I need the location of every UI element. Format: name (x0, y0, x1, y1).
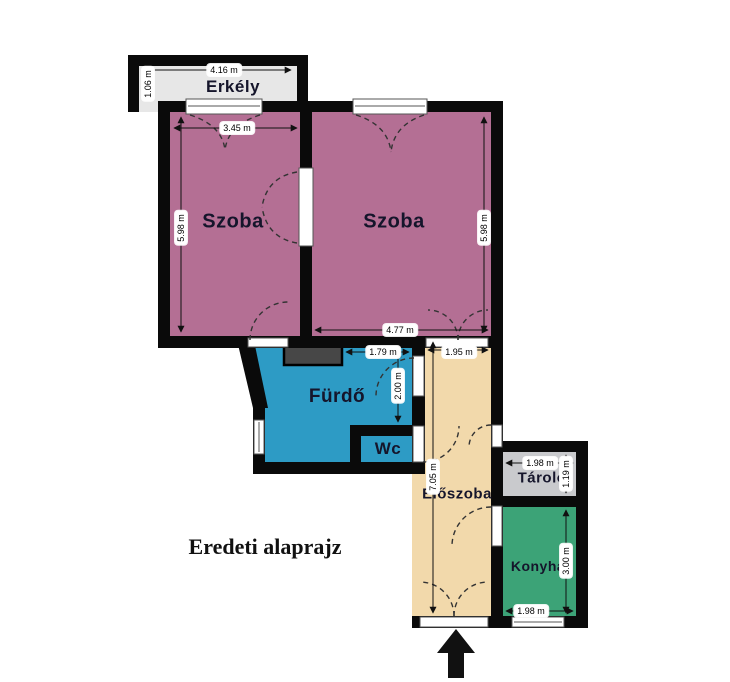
dim-tarolo-height: 1.19 m (560, 457, 572, 491)
dim-balcony-depth: 1.06 m (142, 67, 154, 101)
dim-eloszoba-height: 7.05 m (427, 460, 439, 494)
between-rooms-door (299, 168, 313, 246)
dim-eloszoba-width: 1.95 m (442, 346, 476, 358)
label-furdo: Fürdő (309, 386, 365, 408)
page-title: Eredeti alaprajz (189, 534, 342, 560)
entrance-door (420, 617, 488, 627)
wall-tarolo-kitchen (491, 496, 588, 507)
wall-wc-left (350, 425, 361, 474)
room-eloszoba (412, 336, 503, 628)
dim-furdo-height: 2.00 m (392, 369, 404, 403)
wall-tarolo-top (491, 441, 588, 452)
kitchen-door (492, 506, 502, 546)
dim-balcony-width: 4.16 m (207, 64, 241, 76)
hall-right-door (492, 425, 502, 447)
floorplan-drawing (0, 0, 730, 682)
dim-konyha-width: 1.98 m (514, 605, 548, 617)
floorplan: Erkély Szoba Szoba Fürdő Wc Előszoba Tár… (0, 0, 730, 682)
label-szoba-right: Szoba (363, 211, 424, 234)
dim-szoba-left-height: 5.98 m (175, 211, 187, 245)
wall-left-exterior (158, 101, 170, 348)
wall-kitchen-right (576, 441, 588, 628)
label-erkely: Erkély (206, 77, 260, 97)
entrance-arrow-icon (437, 629, 475, 678)
wall-bath-bottom (253, 462, 425, 474)
label-wc: Wc (375, 439, 402, 459)
dim-furdo-width: 1.79 m (366, 346, 400, 358)
wc-hall-door (413, 426, 424, 462)
dim-tarolo-width: 1.98 m (523, 457, 557, 469)
dim-szoba-right-width: 4.77 m (383, 324, 417, 336)
label-szoba-left: Szoba (202, 211, 263, 234)
bath-hall-door (413, 356, 424, 396)
dim-konyha-height: 3.00 m (560, 544, 572, 578)
label-konyha: Konyha (511, 558, 565, 574)
dim-szoba-right-height: 5.98 m (478, 211, 490, 245)
szoba-left-bath-door (248, 338, 288, 347)
dim-szoba-left-width: 3.45 m (220, 122, 254, 134)
